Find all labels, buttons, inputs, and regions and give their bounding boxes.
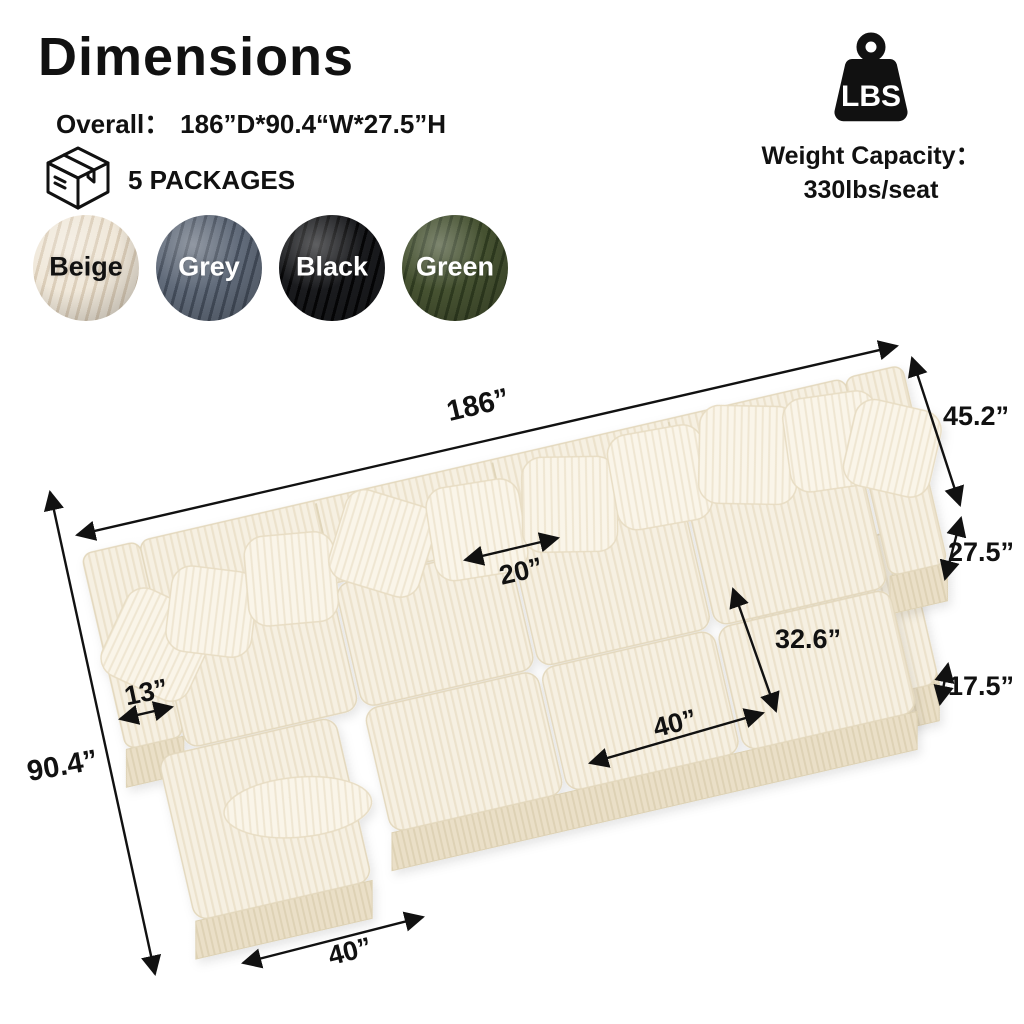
swatch-label: Grey <box>156 251 262 282</box>
swatch-label: Green <box>402 251 508 282</box>
back-pillow <box>243 530 341 628</box>
back-pillow <box>521 456 618 553</box>
sofa-dimension-illustration: 186” 45.2” 27.5” 20” 32.6” 40” 17.5” <box>0 0 1024 1024</box>
swatch-label: Beige <box>33 251 139 282</box>
dim-seat-height: 27.5” <box>945 518 1014 579</box>
page-root: Dimensions Overall：186”D*90.4“W*27.5”H 5… <box>0 0 1024 1024</box>
dim-label: 32.6” <box>775 624 841 654</box>
dim-label: 27.5” <box>948 537 1014 567</box>
dim-label: 45.2” <box>943 401 1009 431</box>
dim-label: 17.5” <box>948 671 1014 701</box>
swatch-label: Black <box>279 251 385 282</box>
back-pillow <box>164 564 260 660</box>
dim-label: 186” <box>444 383 512 428</box>
dim-arrow <box>940 664 948 704</box>
dim-label: 40” <box>325 931 375 971</box>
sofa-body <box>67 351 1024 966</box>
dim-label: 90.4” <box>25 744 100 788</box>
dim-ottoman-height: 17.5” <box>940 664 1014 704</box>
